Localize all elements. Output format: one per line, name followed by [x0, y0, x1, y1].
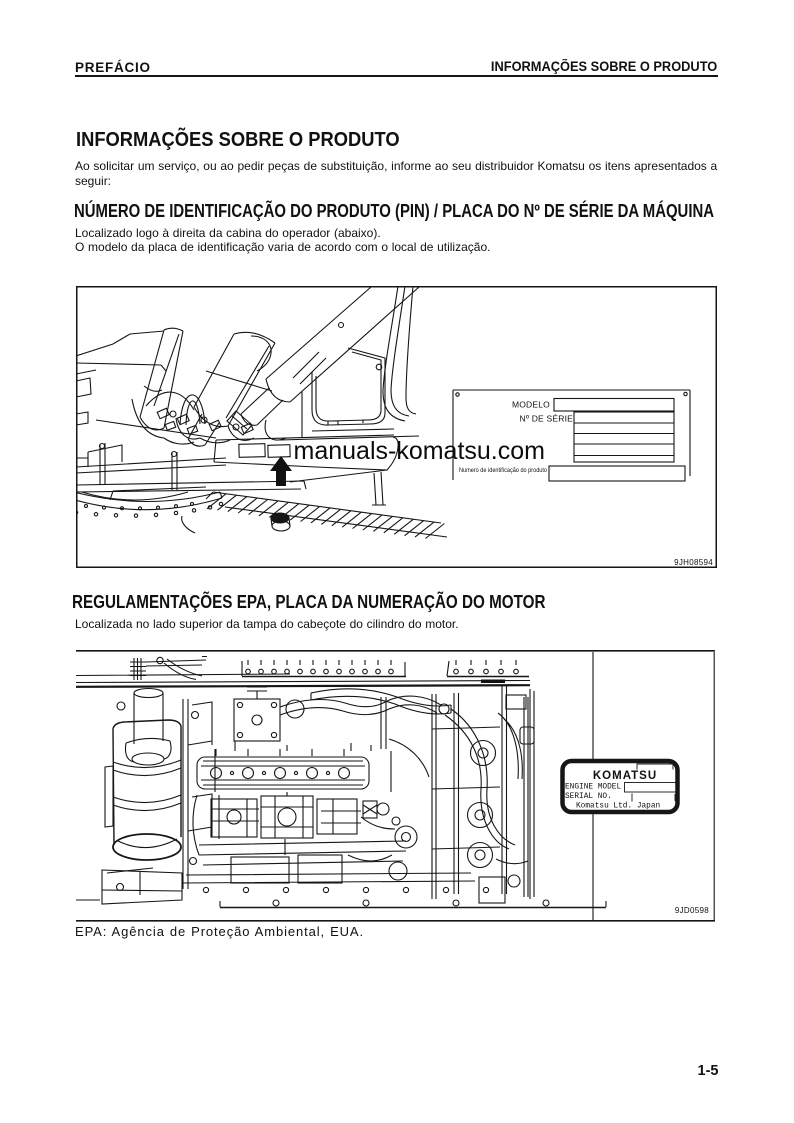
svg-text:ENGINE MODEL: ENGINE MODEL — [565, 784, 621, 792]
svg-text:KOMATSU: KOMATSU — [593, 770, 657, 782]
svg-text:MODELO: MODELO — [512, 400, 550, 410]
svg-text:SERIAL NO.: SERIAL NO. — [565, 793, 612, 801]
svg-text:9JH08594: 9JH08594 — [674, 558, 713, 567]
svg-text:Numero de identificação do pro: Numero de identificação do produto — [459, 467, 548, 474]
svg-text:Komatsu Ltd. Japan: Komatsu Ltd. Japan — [576, 803, 660, 811]
svg-text:Nº DE SÉRIE: Nº DE SÉRIE — [520, 414, 574, 424]
svg-text:9JD0598: 9JD0598 — [675, 906, 709, 915]
